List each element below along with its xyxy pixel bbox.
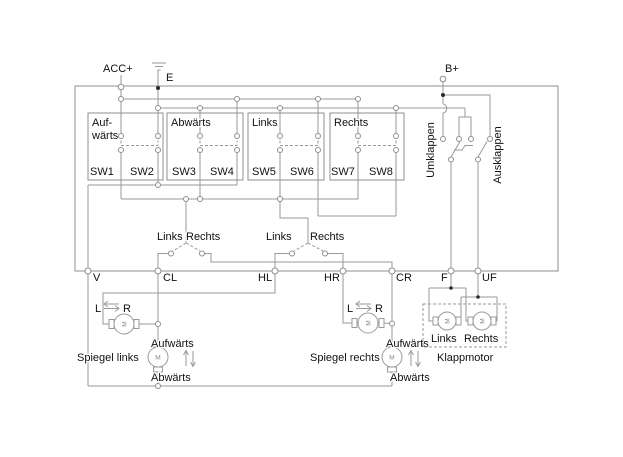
sw5-label: SW5 — [252, 166, 276, 178]
ground-rail-node — [156, 106, 161, 111]
selector-horizontal-rechts-label: Rechts — [310, 231, 345, 243]
mirror-right-name-label: Spiegel rechts — [310, 352, 380, 364]
v-bus-junction — [156, 384, 161, 389]
ground-label: E — [166, 72, 173, 84]
mirror-left-r-label: R — [123, 303, 131, 315]
selector-horizontal-switch — [290, 243, 328, 256]
mirror-left-name-label: Spiegel links — [77, 352, 139, 364]
mirror-left-up-label: Aufwärts — [151, 338, 194, 350]
acc-label: ACC+ — [103, 63, 133, 75]
terminal-cl-label: CL — [163, 272, 177, 284]
up-down-arrows-mirror-left — [184, 351, 196, 367]
selector-vertical-rechts-label: Rechts — [186, 231, 221, 243]
selector-vertical-switch — [169, 243, 205, 256]
left-right-arrows-mirror-left — [104, 301, 119, 312]
f-junction-dot — [449, 286, 453, 290]
terminal-v-label: V — [93, 272, 101, 284]
mirror-right-horizontal-motor: M — [352, 313, 384, 333]
fold-switches — [441, 137, 493, 163]
mirror-circuit-diagram: ACC+ E B+ Auf- wärts Abwärts Links Recht… — [0, 0, 623, 457]
terminal-f-label: F — [441, 272, 448, 284]
fold-out-label: Ausklappen — [492, 126, 504, 184]
fold-motor-name-label: Klappmotor — [437, 352, 494, 364]
battery-junction-dot — [441, 93, 445, 97]
mirror-right-down-label: Abwärts — [390, 372, 430, 384]
sw3-label: SW3 — [172, 166, 196, 178]
uf-junction-dot — [476, 295, 480, 299]
svg-text:M: M — [155, 355, 160, 362]
svg-text:M: M — [366, 320, 373, 325]
box-up-label-2: wärts — [91, 130, 119, 142]
fold-motor-right: M — [468, 312, 496, 330]
selector-horizontal-links-label: Links — [266, 231, 292, 243]
up-down-arrows-mirror-right — [409, 351, 421, 367]
svg-text:M: M — [445, 318, 452, 323]
acc-terminal — [118, 84, 124, 90]
box-right-label: Rechts — [334, 117, 369, 129]
cl-junction — [156, 322, 161, 327]
svg-text:M: M — [480, 318, 487, 323]
battery-terminal — [440, 76, 446, 82]
left-right-arrows-mirror-right — [356, 301, 371, 312]
box-left-label: Links — [252, 117, 278, 129]
terminal-hl-label: HL — [258, 272, 272, 284]
battery-label: B+ — [445, 63, 459, 75]
ground-junction-dot — [156, 86, 160, 90]
fold-motor-left: M — [433, 312, 461, 330]
fold-motor-rechts-label: Rechts — [464, 333, 499, 345]
acc-rail-node — [119, 97, 124, 102]
svg-text:M: M — [122, 321, 129, 326]
mirror-right-l-label: L — [347, 303, 353, 315]
sw7-label: SW7 — [331, 166, 355, 178]
schematic-page: ACC+ E B+ Auf- wärts Abwärts Links Recht… — [0, 0, 623, 457]
mirror-left-l-label: L — [95, 303, 101, 315]
terminal-uf-label: UF — [482, 272, 497, 284]
rail-nodes — [156, 97, 399, 202]
fold-in-label: Umklappen — [425, 122, 437, 178]
selector-vertical-links-label: Links — [157, 231, 183, 243]
sw4-label: SW4 — [210, 166, 234, 178]
cr-junction — [390, 321, 395, 326]
box-up-label-1: Auf- — [92, 117, 113, 129]
mirror-left-horizontal-motor: M — [109, 314, 139, 334]
fold-motor-links-label: Links — [431, 333, 457, 345]
sw8-label: SW8 — [369, 166, 393, 178]
mirror-right-r-label: R — [375, 303, 383, 315]
ground-symbol — [152, 63, 166, 70]
switch-contacts — [119, 134, 399, 153]
sw1-label: SW1 — [90, 166, 114, 178]
sw6-label: SW6 — [290, 166, 314, 178]
terminal-cr-label: CR — [396, 272, 412, 284]
control-unit-box — [75, 86, 558, 271]
sw2-label: SW2 — [130, 166, 154, 178]
mirror-left-down-label: Abwärts — [151, 372, 191, 384]
svg-text:M: M — [389, 355, 394, 362]
terminal-hr-label: HR — [324, 272, 340, 284]
box-down-label: Abwärts — [171, 117, 211, 129]
